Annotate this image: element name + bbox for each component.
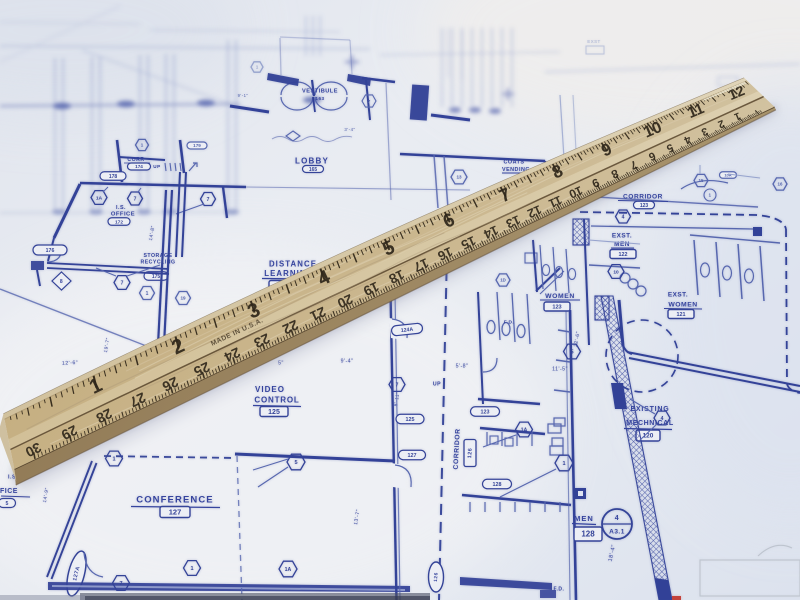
svg-text:128: 128 xyxy=(581,530,595,539)
svg-text:A3.1: A3.1 xyxy=(609,529,625,536)
svg-text:7: 7 xyxy=(207,197,210,203)
svg-text:1A: 1A xyxy=(96,195,103,201)
svg-text:7: 7 xyxy=(121,280,124,286)
svg-text:EXST: EXST xyxy=(587,39,600,44)
svg-text:1: 1 xyxy=(709,193,712,198)
svg-text:175: 175 xyxy=(152,274,161,280)
svg-text:172: 172 xyxy=(115,219,123,225)
svg-text:123: 123 xyxy=(552,304,561,310)
svg-text:4: 4 xyxy=(615,515,619,522)
svg-text:EXST.: EXST. xyxy=(668,292,688,299)
svg-text:VIDEO: VIDEO xyxy=(255,385,285,394)
svg-text:126: 126 xyxy=(433,572,440,582)
svg-text:CONTROL: CONTROL xyxy=(254,396,299,405)
svg-text:1: 1 xyxy=(146,291,149,297)
svg-text:9'-4": 9'-4" xyxy=(341,358,354,364)
svg-text:4: 4 xyxy=(661,416,664,422)
svg-text:CORRIDOR: CORRIDOR xyxy=(623,193,663,200)
svg-text:127: 127 xyxy=(408,453,417,459)
svg-text:VESTIBULE: VESTIBULE xyxy=(302,88,338,94)
svg-text:EXISTING: EXISTING xyxy=(630,406,669,413)
svg-text:7: 7 xyxy=(368,99,371,105)
svg-text:10A: 10A xyxy=(724,173,731,178)
svg-text:179: 179 xyxy=(193,143,201,148)
svg-text:1: 1 xyxy=(190,566,193,572)
svg-text:5'-8": 5'-8" xyxy=(456,363,469,369)
svg-text:163: 163 xyxy=(315,96,324,101)
svg-text:123: 123 xyxy=(640,203,649,209)
svg-text:165: 165 xyxy=(309,167,318,173)
svg-text:174: 174 xyxy=(135,164,143,169)
svg-text:3'-4": 3'-4" xyxy=(344,127,355,132)
svg-text:123: 123 xyxy=(481,409,490,415)
svg-text:13: 13 xyxy=(456,175,462,180)
svg-text:12'-6": 12'-6" xyxy=(62,360,79,367)
svg-text:125: 125 xyxy=(268,409,280,416)
svg-text:127: 127 xyxy=(169,507,182,516)
svg-text:FICE: FICE xyxy=(0,488,18,495)
svg-text:OFFICE: OFFICE xyxy=(111,212,135,218)
svg-text:1: 1 xyxy=(562,461,565,467)
svg-text:4: 4 xyxy=(622,214,625,220)
svg-text:F.D.: F.D. xyxy=(504,319,515,325)
svg-text:11'-5": 11'-5" xyxy=(552,366,568,372)
svg-text:CORR: CORR xyxy=(127,157,144,163)
svg-text:8: 8 xyxy=(60,279,63,285)
svg-text:176: 176 xyxy=(46,248,55,254)
svg-text:10: 10 xyxy=(613,269,619,275)
svg-text:122: 122 xyxy=(619,252,628,258)
svg-text:DISTANCE: DISTANCE xyxy=(269,260,317,269)
svg-text:121: 121 xyxy=(677,312,686,318)
svg-text:19: 19 xyxy=(180,296,186,301)
svg-text:UP: UP xyxy=(153,164,160,169)
svg-text:1D: 1D xyxy=(500,278,506,283)
svg-text:7: 7 xyxy=(134,196,137,202)
svg-text:178: 178 xyxy=(109,174,118,180)
svg-text:COATS: COATS xyxy=(504,159,525,165)
svg-text:5: 5 xyxy=(570,349,573,355)
svg-text:CONFERENCE: CONFERENCE xyxy=(136,495,214,506)
svg-text:WOMEN: WOMEN xyxy=(668,301,697,308)
svg-text:I.S.: I.S. xyxy=(116,205,126,211)
svg-text:7: 7 xyxy=(119,581,122,587)
svg-text:LOBBY: LOBBY xyxy=(295,157,329,166)
svg-text:125: 125 xyxy=(406,417,415,423)
svg-text:5: 5 xyxy=(6,501,9,507)
svg-text:9'-1": 9'-1" xyxy=(238,93,249,98)
svg-text:1A: 1A xyxy=(521,427,528,433)
svg-text:16: 16 xyxy=(778,182,783,187)
svg-text:1: 1 xyxy=(112,456,115,462)
svg-text:UP: UP xyxy=(433,381,441,387)
svg-text:5: 5 xyxy=(294,460,297,466)
svg-text:RECYCLING: RECYCLING xyxy=(140,259,175,265)
svg-text:MEN: MEN xyxy=(574,514,594,523)
svg-text:128: 128 xyxy=(493,482,502,488)
svg-text:1A: 1A xyxy=(285,567,292,573)
svg-text:126: 126 xyxy=(467,448,474,459)
svg-text:WOMEN: WOMEN xyxy=(545,293,575,300)
svg-text:EXST.: EXST. xyxy=(612,233,632,240)
svg-text:7: 7 xyxy=(396,382,399,388)
